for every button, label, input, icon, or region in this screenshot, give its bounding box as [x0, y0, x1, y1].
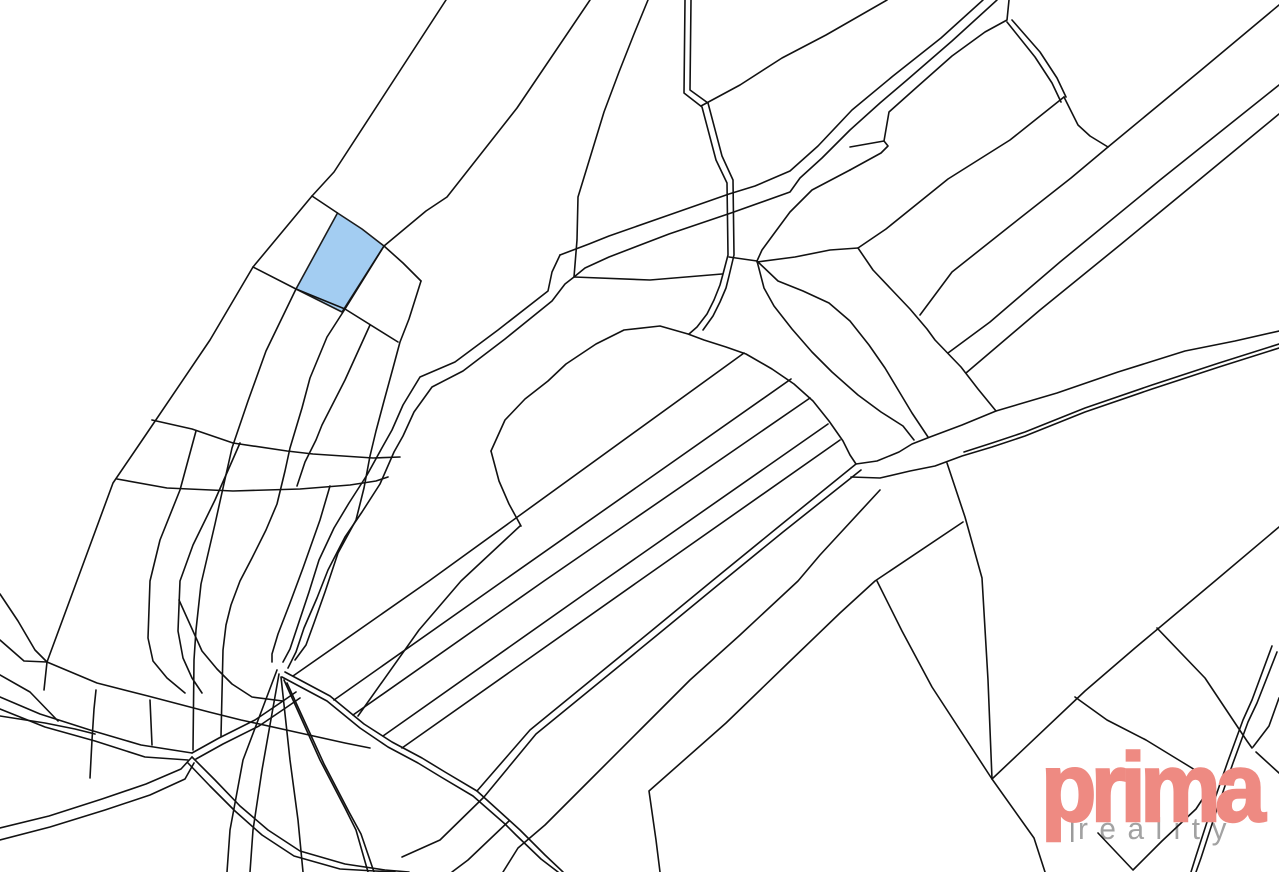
- svg-text:prima: prima: [1041, 733, 1267, 842]
